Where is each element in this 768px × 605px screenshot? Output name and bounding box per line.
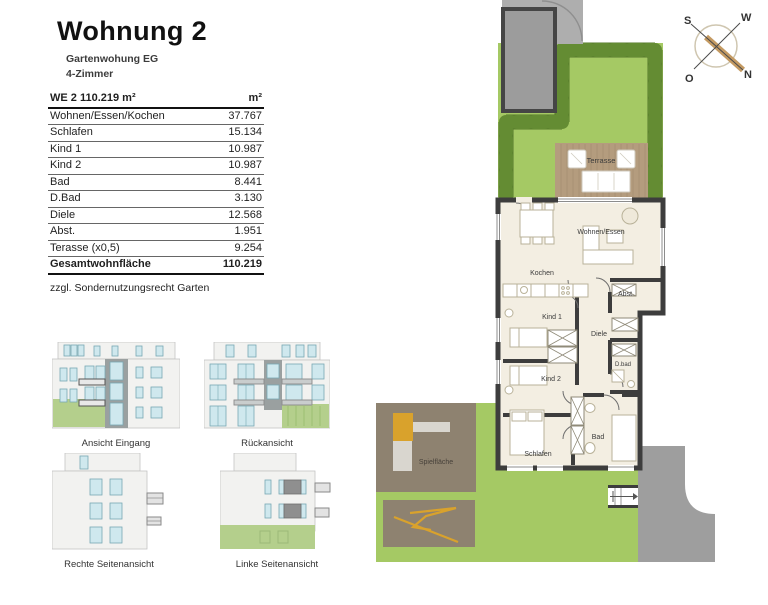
room-label-kochen: Kochen [530,270,554,277]
room-label-terrasse: Terrasse [587,156,616,165]
room-label-kind2: Kind 2 [541,376,561,383]
table-row: Kind 110.987 [48,142,264,159]
stair-core [503,9,555,111]
apartment-expose-sheet: Wohnung 2 Gartenwohung EG 4-Zimmer WE 2 … [0,0,768,605]
dining-table [520,210,553,237]
elevation-back-drawing [204,342,330,430]
elevation-front: Ansicht Eingang [52,342,180,449]
room-label-dbad: D.bad [615,362,631,368]
table-row: Kind 210.987 [48,158,264,175]
room-label-kind1: Kind 1 [542,314,562,321]
table-total-row: Gesamtwohnfläche110.219 [48,257,264,275]
elevation-left-side: Linke Seitenansicht [220,453,334,570]
table-row: Schlafen15.134 [48,125,264,142]
floor-plan: Terrasse [370,0,768,605]
table-row: Abst.1.951 [48,224,264,241]
elevation-front-drawing [52,342,180,430]
toilet [585,443,595,454]
elevation-right-label: Rechte Seitenansicht [52,559,166,570]
subtitle-rooms: 4-Zimmer [66,67,264,82]
elevation-right-side: Rechte Seitenansicht [52,453,166,570]
page-title: Wohnung 2 [57,16,264,47]
elevation-back-label: Rückansicht [204,438,330,449]
terrace-bench [582,171,630,192]
area-table-unit: m² [249,92,262,105]
elevation-left-label: Linke Seitenansicht [220,559,334,570]
room-label-bad: Bad [592,434,605,441]
elevation-right-drawing [52,453,166,551]
terrace: Terrasse [555,143,648,200]
info-column: Wohnung 2 Gartenwohung EG 4-Zimmer WE 2 … [48,16,264,294]
table-row: Wohnen/Essen/Kochen37.767 [48,109,264,126]
elevation-left-drawing [220,453,334,551]
area-table: WE 2 110.219 m² m² Wohnen/Essen/Kochen37… [48,91,264,275]
room-label-diele: Diele [591,331,607,338]
elevation-back: Rückansicht [204,342,330,449]
entrance-steps [608,485,638,508]
play-area-label: Spielfläche [419,459,453,466]
bath-sink [585,404,595,413]
room-label-wohnen-essen: Wohnen/Essen [577,229,624,236]
table-row: Diele12.568 [48,208,264,225]
play-area-2 [383,500,475,547]
area-table-header: WE 2 110.219 m² m² [48,91,264,109]
bathtub [612,415,636,461]
area-table-title: WE 2 110.219 m² [50,92,136,105]
room-label-abst: Abst. [618,291,634,298]
rug [622,208,638,224]
table-row: D.Bad3.130 [48,191,264,208]
room-label-schlafen: Schlafen [524,451,551,458]
elevation-front-label: Ansicht Eingang [52,438,180,449]
garden-note: zzgl. Sondernutzungsrecht Garten [50,282,264,294]
footpath [638,446,715,562]
table-row: Terasse (x0,5)9.254 [48,241,264,258]
apartment-subtitle: Gartenwohung EG 4-Zimmer [66,52,264,82]
table-row: Bad8.441 [48,175,264,192]
subtitle-type: Gartenwohung EG [66,52,264,67]
play-equipment [393,413,413,441]
play-area-1: Spielfläche [376,403,476,492]
